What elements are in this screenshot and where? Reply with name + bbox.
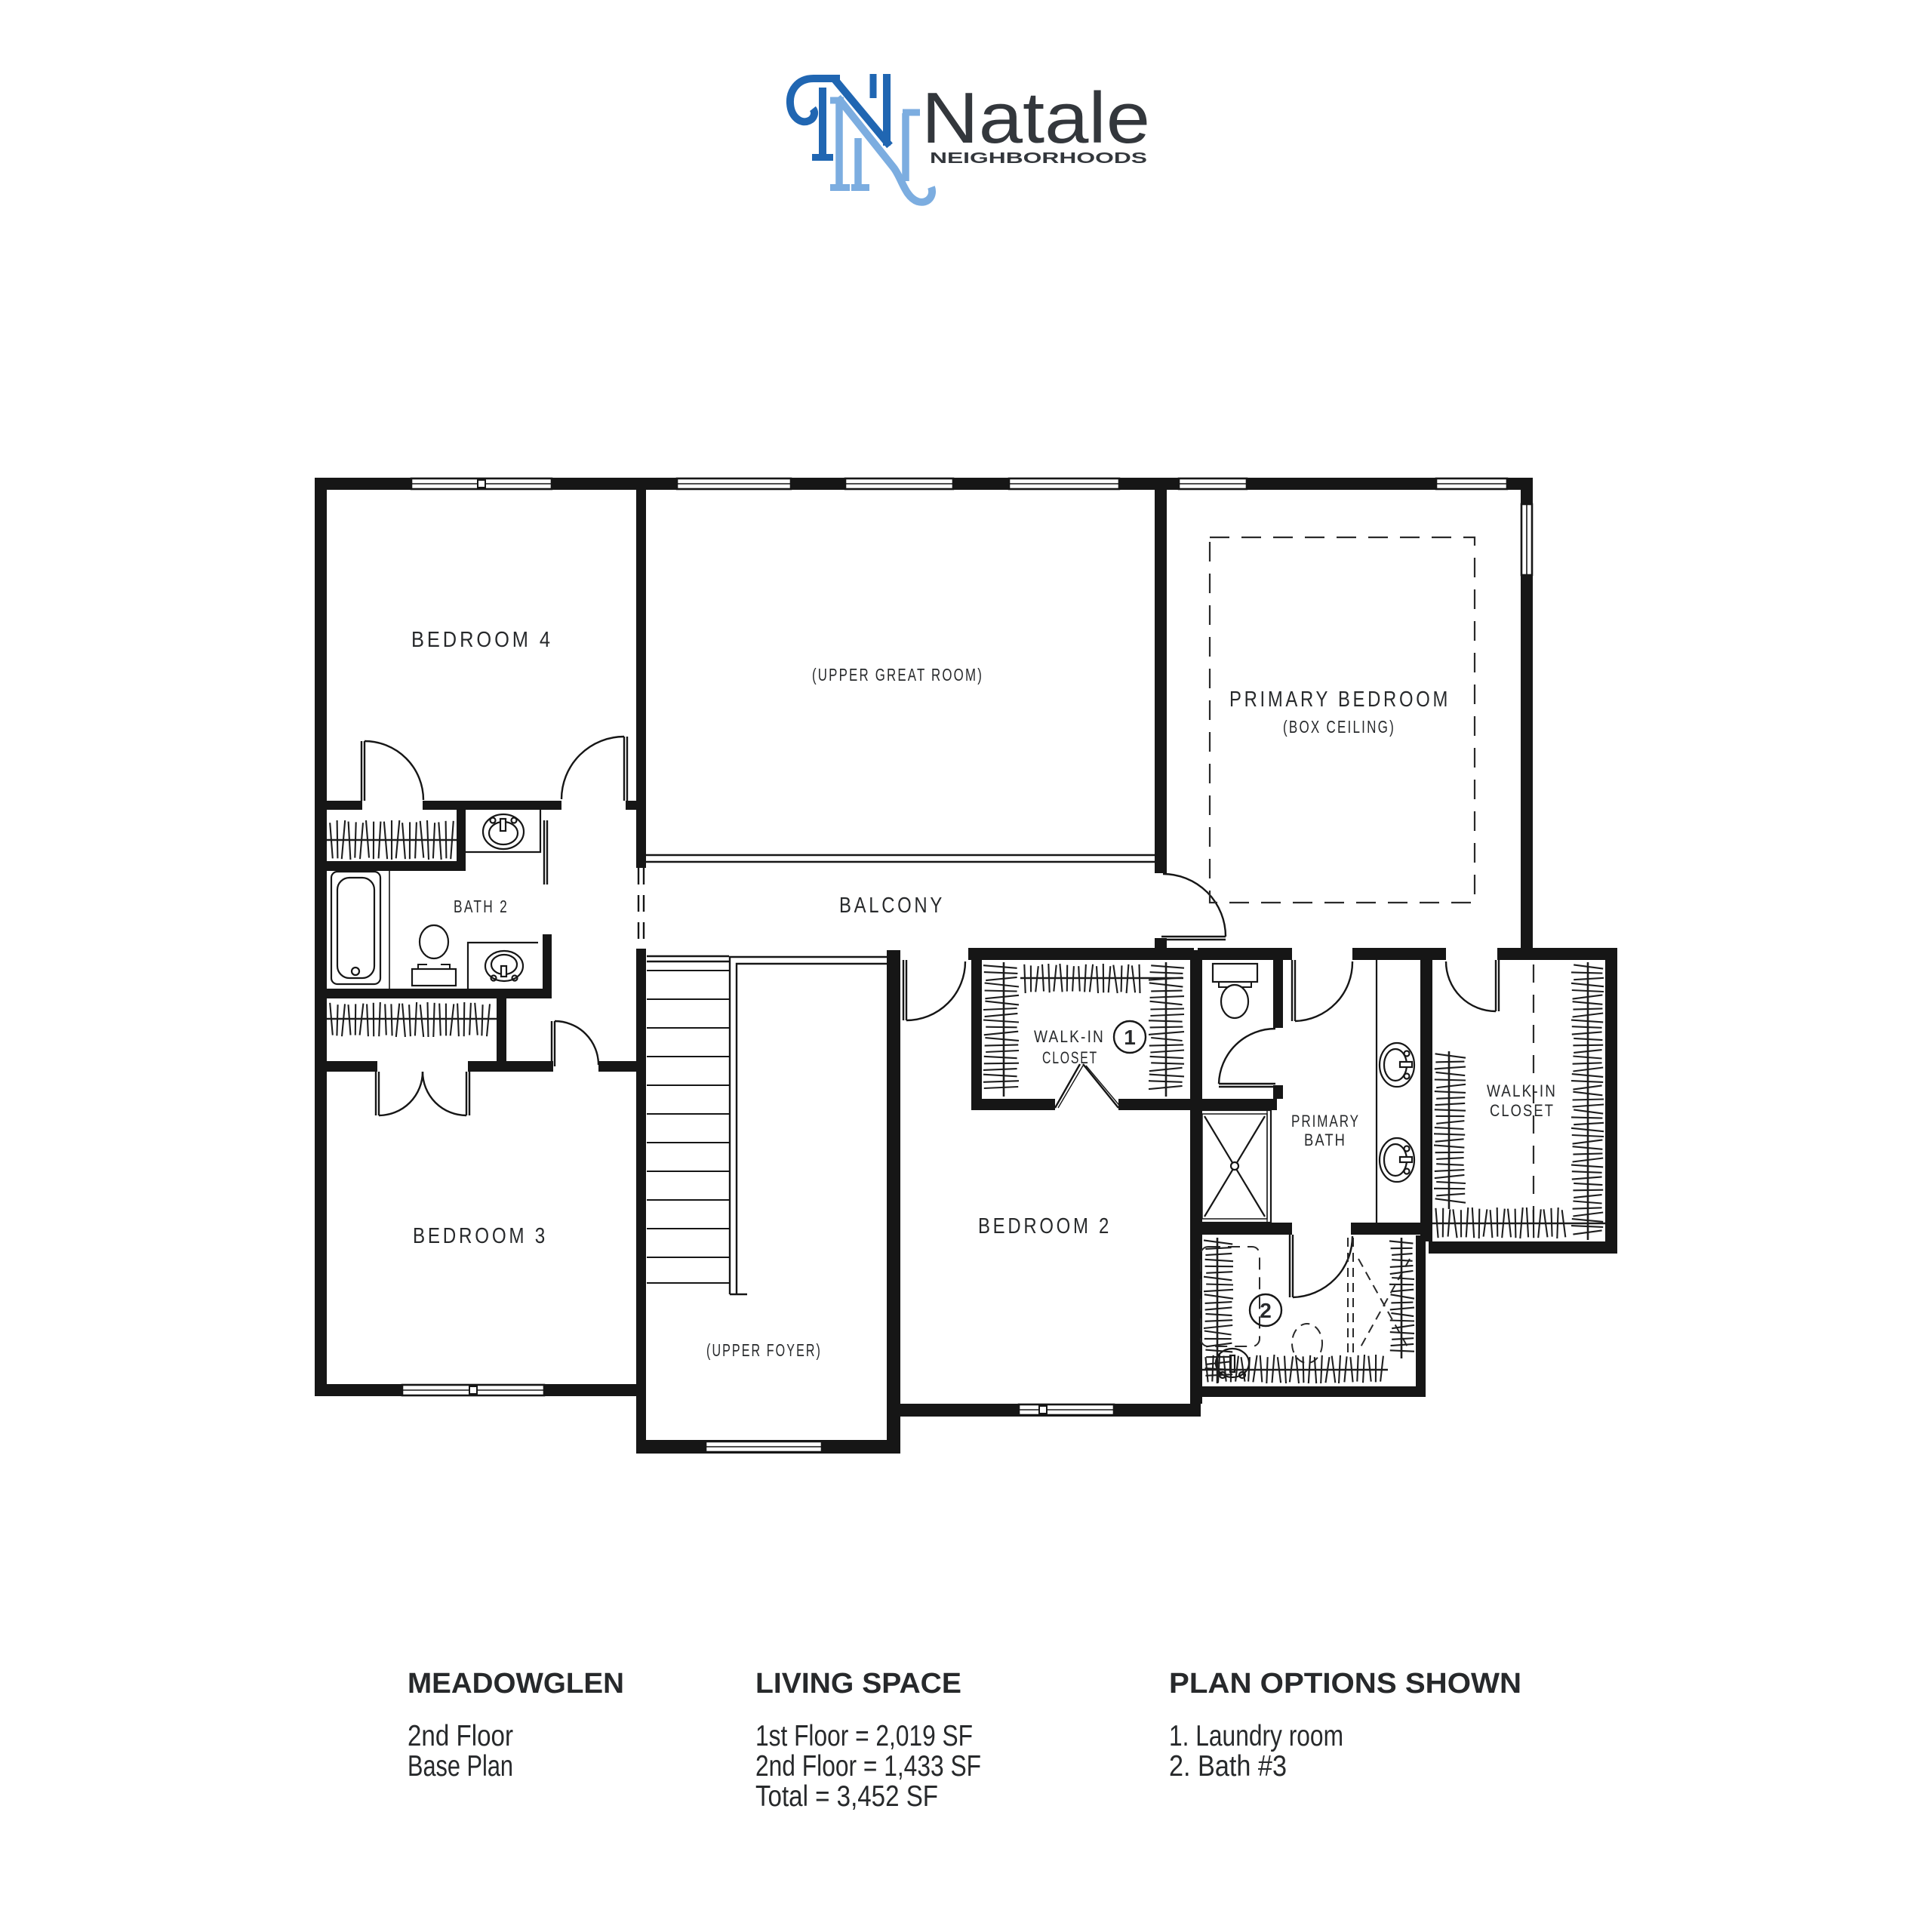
svg-text:BATH 2: BATH 2 <box>454 897 509 916</box>
svg-text:Total = 3,452 SF: Total = 3,452 SF <box>755 1780 938 1813</box>
svg-text:CLOSET: CLOSET <box>1490 1101 1555 1120</box>
svg-text:PRIMARY: PRIMARY <box>1291 1112 1360 1131</box>
svg-text:BALCONY: BALCONY <box>839 894 945 918</box>
svg-text:PLAN OPTIONS SHOWN: PLAN OPTIONS SHOWN <box>1169 1668 1521 1700</box>
svg-text:2. Bath #3: 2. Bath #3 <box>1169 1750 1287 1783</box>
svg-text:2nd Floor = 1,433 SF: 2nd Floor = 1,433 SF <box>755 1750 981 1783</box>
svg-text:WALK-IN: WALK-IN <box>1034 1027 1105 1046</box>
svg-text:WALK-IN: WALK-IN <box>1487 1081 1557 1100</box>
svg-text:BEDROOM 3: BEDROOM 3 <box>413 1224 548 1248</box>
svg-text:(BOX CEILING): (BOX CEILING) <box>1283 717 1395 737</box>
svg-text:BATH: BATH <box>1304 1131 1346 1149</box>
svg-text:BEDROOM 2: BEDROOM 2 <box>978 1214 1112 1238</box>
svg-text:(UPPER GREAT ROOM): (UPPER GREAT ROOM) <box>812 665 983 685</box>
svg-text:NEIGHBORHOODS: NEIGHBORHOODS <box>930 150 1147 167</box>
svg-text:1: 1 <box>1124 1026 1136 1049</box>
svg-text:Base Plan: Base Plan <box>408 1750 513 1783</box>
svg-text:CLOSET: CLOSET <box>1042 1048 1098 1067</box>
svg-text:BEDROOM 4: BEDROOM 4 <box>411 628 553 652</box>
svg-text:MEADOWGLEN: MEADOWGLEN <box>408 1668 624 1700</box>
svg-text:(UPPER FOYER): (UPPER FOYER) <box>706 1340 822 1360</box>
svg-text:LIVING SPACE: LIVING SPACE <box>755 1668 961 1700</box>
svg-text:1. Laundry room: 1. Laundry room <box>1169 1720 1343 1752</box>
svg-text:1st Floor = 2,019 SF: 1st Floor = 2,019 SF <box>755 1720 973 1752</box>
svg-text:PRIMARY BEDROOM: PRIMARY BEDROOM <box>1229 688 1451 712</box>
svg-text:2: 2 <box>1260 1299 1272 1322</box>
svg-text:Natale: Natale <box>921 78 1150 158</box>
svg-text:2nd Floor: 2nd Floor <box>408 1720 513 1752</box>
